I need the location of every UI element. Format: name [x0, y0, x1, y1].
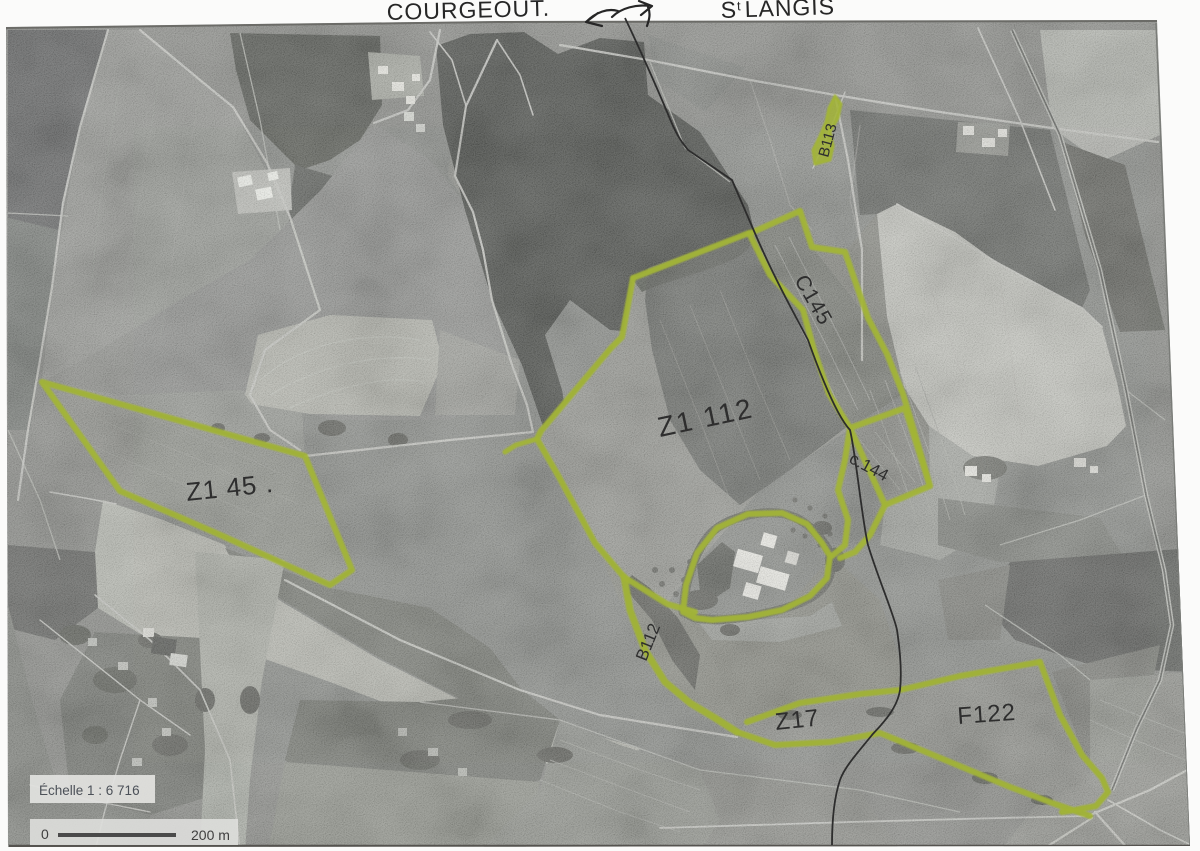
svg-text:Échelle 1 : 6 716: Échelle 1 : 6 716 — [39, 783, 140, 798]
svg-text:COURGEOUT.: COURGEOUT. — [386, 0, 550, 25]
svg-text:0: 0 — [41, 826, 49, 842]
svg-text:Z17: Z17 — [774, 704, 821, 735]
svg-text:F122: F122 — [957, 699, 1017, 730]
svg-text:200 m: 200 m — [191, 827, 230, 843]
